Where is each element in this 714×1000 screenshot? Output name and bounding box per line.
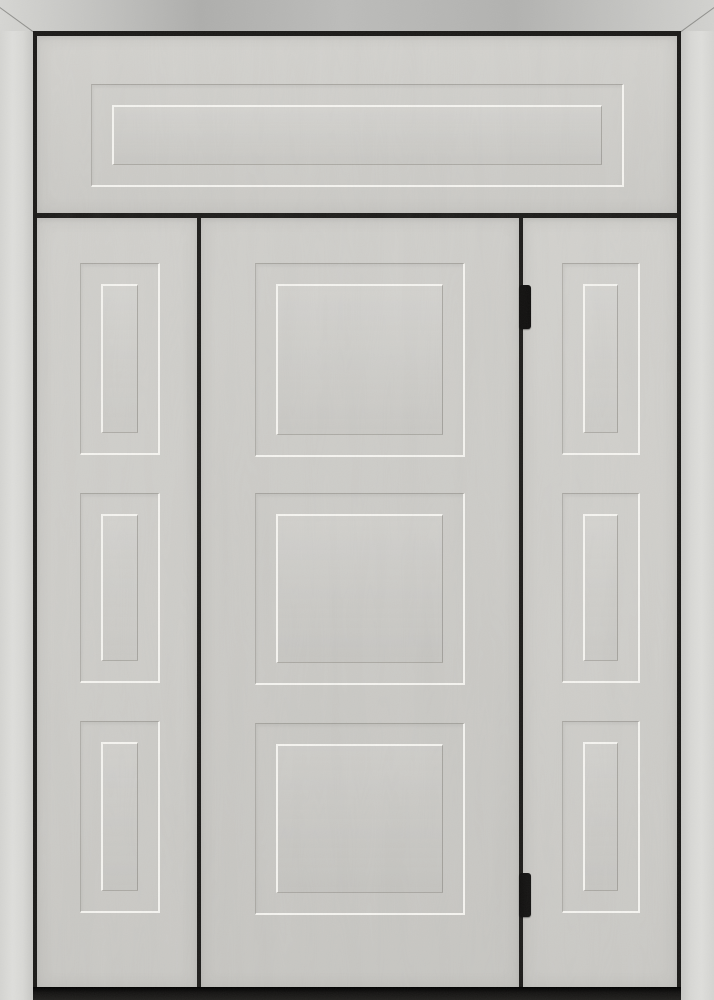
raised-panel-center (583, 742, 618, 891)
recessed-panel (562, 721, 640, 913)
door-slab (201, 218, 519, 987)
recessed-panel (80, 721, 160, 913)
recessed-panel (80, 493, 160, 683)
recessed-panel (562, 263, 640, 455)
door-sill (33, 987, 681, 1000)
raised-panel-center (112, 105, 602, 165)
door-hinge (519, 873, 531, 917)
recessed-panel (562, 493, 640, 683)
raised-panel-center (276, 514, 443, 663)
raised-panel-center (276, 744, 443, 893)
raised-panel-center (583, 514, 618, 661)
recessed-panel (80, 263, 160, 455)
recessed-panel (255, 723, 465, 915)
transom-section (37, 36, 677, 213)
raised-panel-center (101, 514, 138, 661)
door-hinge (519, 285, 531, 329)
left-sidelite (37, 218, 197, 987)
recessed-panel (255, 263, 465, 457)
raised-panel-center (583, 284, 618, 433)
outer-frame-left (0, 0, 33, 1000)
raised-panel-center (101, 742, 138, 891)
recessed-panel (255, 493, 465, 685)
door-product-image (0, 0, 714, 1000)
outer-frame-top (0, 0, 714, 31)
right-sidelite (523, 218, 677, 987)
raised-panel-center (276, 284, 443, 435)
door-row (37, 218, 677, 987)
raised-panel-center (101, 284, 138, 433)
door-assembly (33, 31, 681, 1000)
recessed-panel (91, 84, 624, 187)
outer-frame-right (681, 0, 714, 1000)
